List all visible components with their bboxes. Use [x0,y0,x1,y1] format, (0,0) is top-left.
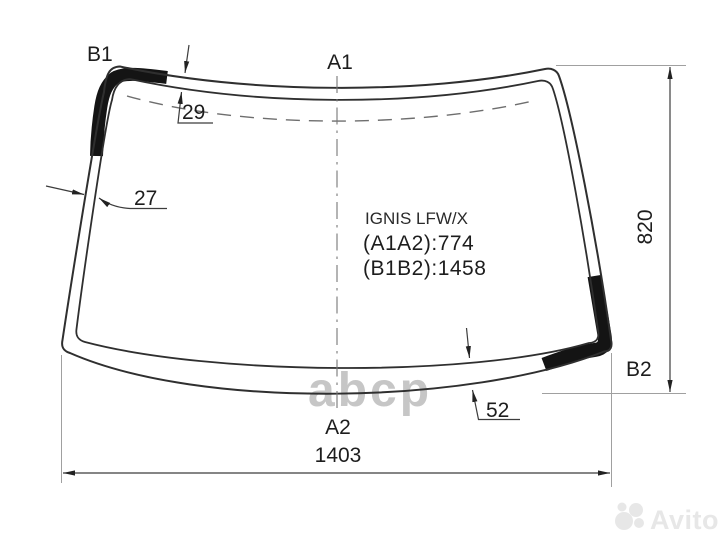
callout-52-arrow-down [467,328,470,358]
dim-29-value: 29 [182,101,205,124]
avito-watermark: Avito [615,503,719,536]
frit-band-top-left [97,74,168,156]
windshield-diagram: abcp Avito 820 1403 [0,0,720,540]
title-block: IGNIS LFW/X (A1A2):774 (B1B2):1458 [363,209,486,280]
callout-27-arrow-right [46,186,84,195]
part-code: IGNIS LFW/X [365,209,468,228]
spec-b1b2: (B1B2):1458 [363,257,486,280]
dim-820-value: 820 [634,209,657,244]
label-a2: A2 [325,416,351,439]
dim-52-value: 52 [486,399,509,422]
dim-1403-value: 1403 [315,444,362,467]
callout-29-arrow-down [185,45,189,73]
avito-watermark-text: Avito [650,505,719,535]
spec-a1a2: (A1A2):774 [363,232,474,255]
avito-logo-icon [615,503,644,531]
label-b1: B1 [87,43,113,66]
diagram-canvas: abcp Avito 820 1403 [0,0,720,540]
label-b2: B2 [626,358,652,381]
label-a1: A1 [327,51,353,74]
dim-27-value: 27 [134,187,157,210]
